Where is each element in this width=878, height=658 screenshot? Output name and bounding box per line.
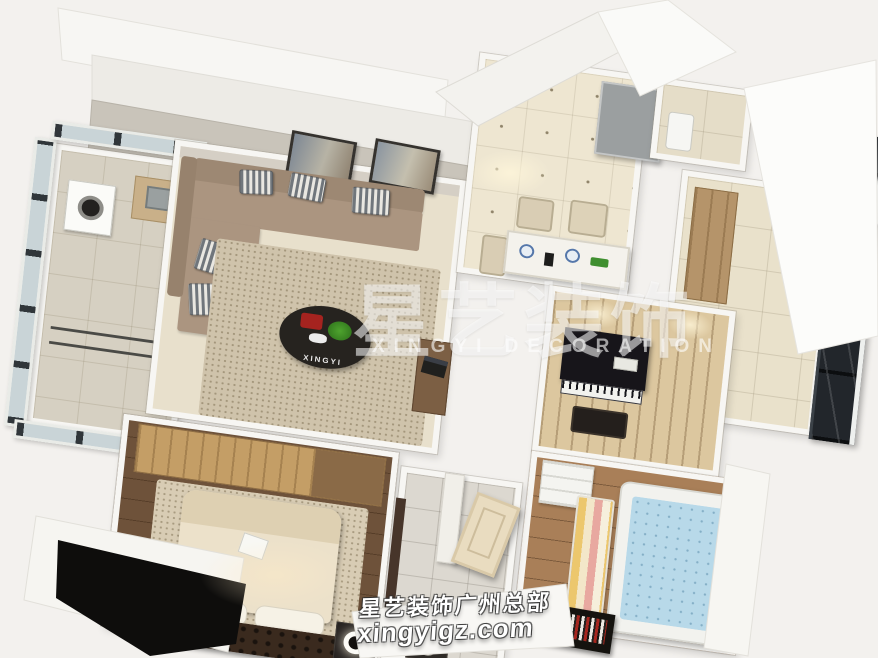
entry-roof-right bbox=[598, 0, 736, 96]
roof-slab-right bbox=[744, 60, 878, 354]
apartment-render: XINGYI bbox=[0, 0, 878, 658]
bedroom-light-glow bbox=[200, 540, 350, 610]
bottom-wall-band bbox=[352, 584, 574, 658]
kids-room-outer-wall bbox=[704, 464, 770, 656]
exterior-wall-planes-front bbox=[0, 0, 878, 658]
hall-light-glow bbox=[470, 150, 550, 196]
